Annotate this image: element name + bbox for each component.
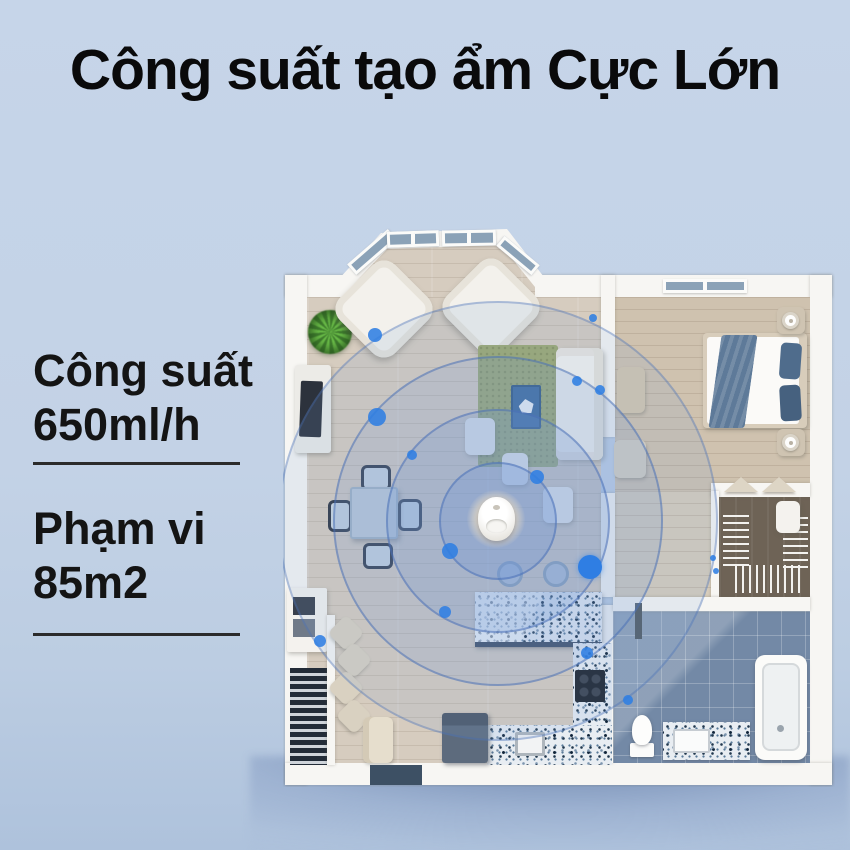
spec-capacity-label: Công suất — [33, 344, 263, 398]
faucet-icon — [777, 725, 784, 732]
lamp-icon — [782, 434, 799, 451]
floorplan-image — [283, 225, 835, 787]
bath-sink — [673, 729, 710, 753]
mist-dot — [368, 408, 386, 426]
mist-dot — [572, 376, 582, 386]
toilet-tank — [630, 743, 654, 757]
bathtub — [755, 655, 807, 760]
divider-line — [33, 462, 240, 465]
closet-bench — [776, 501, 800, 533]
mist-dot — [368, 328, 382, 342]
bay-window-top-2 — [442, 230, 496, 247]
mist-dot — [442, 543, 458, 559]
mist-dot — [589, 314, 597, 322]
clothes-rack — [723, 515, 749, 571]
closet-door-chevron — [762, 477, 796, 492]
mist-dot — [595, 385, 605, 395]
humidifier-icon — [478, 497, 515, 541]
spec-capacity: Công suất 650ml/h — [33, 344, 263, 452]
divider-line — [33, 633, 240, 636]
spec-range: Phạm vi 85m2 — [33, 502, 263, 610]
mist-dot — [439, 606, 451, 618]
spec-range-label: Phạm vi — [33, 502, 263, 556]
wall-bottom — [285, 763, 832, 785]
clothes-rack — [735, 565, 801, 593]
mist-dot — [581, 647, 593, 659]
stairs — [290, 668, 327, 765]
mist-dot — [710, 555, 716, 561]
wall-right — [810, 275, 832, 785]
mist-dot — [713, 568, 719, 574]
toilet-icon — [632, 715, 652, 745]
bay-window-top-1 — [387, 230, 440, 248]
bathtub-basin — [762, 663, 800, 751]
mist-dot-large — [578, 555, 602, 579]
bed-pillow — [779, 342, 802, 379]
spec-capacity-value: 650ml/h — [33, 398, 263, 452]
mist-dot — [407, 450, 417, 460]
entry-door — [370, 765, 422, 785]
mist-dot — [530, 470, 544, 484]
page-title: Công suất tạo ẩm Cực Lớn — [0, 38, 850, 104]
lamp-icon — [782, 312, 799, 329]
mist-dot — [623, 695, 633, 705]
closet-door-chevron — [724, 477, 758, 492]
poster: Công suất tạo ẩm Cực Lớn Công suất 650ml… — [0, 0, 850, 850]
spec-range-value: 85m2 — [33, 556, 263, 610]
bedroom-window — [663, 279, 747, 293]
mist-dot — [314, 635, 326, 647]
entry-armchair — [363, 717, 393, 763]
bed-pillow — [779, 384, 802, 421]
